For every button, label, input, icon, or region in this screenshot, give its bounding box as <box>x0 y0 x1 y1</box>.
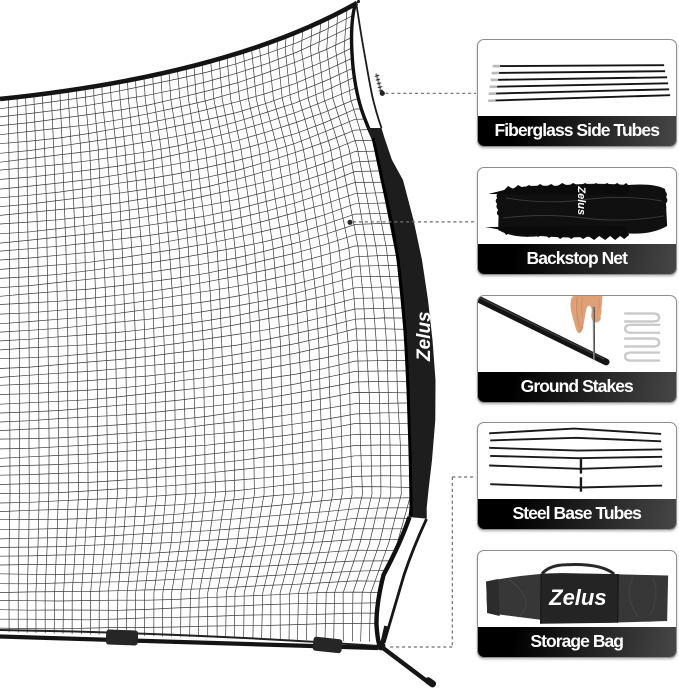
svg-text:Zelus: Zelus <box>575 185 587 215</box>
svg-text:Zelus: Zelus <box>548 585 606 610</box>
svg-text:Zelus: Zelus <box>414 311 435 362</box>
